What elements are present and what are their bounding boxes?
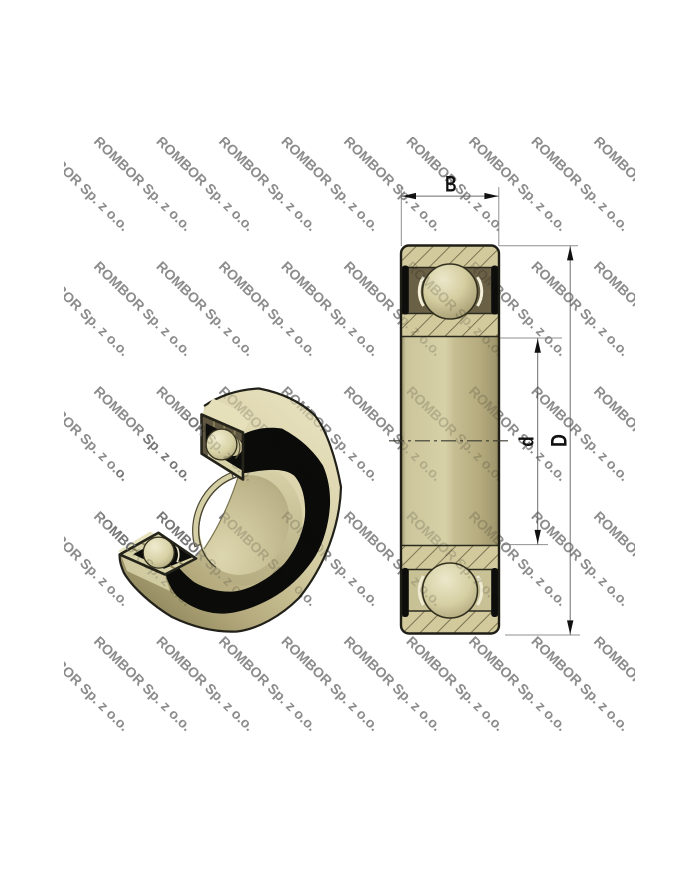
svg-text:D: D xyxy=(548,434,572,447)
